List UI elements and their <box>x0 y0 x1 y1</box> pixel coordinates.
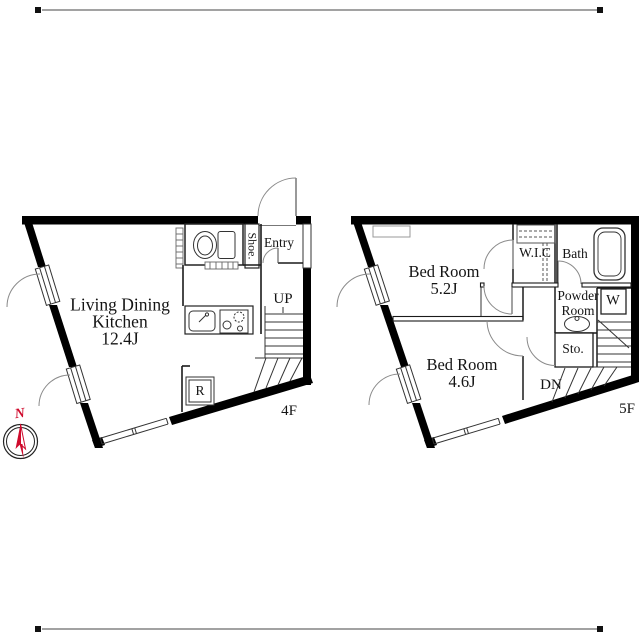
top-wall-ledge <box>373 226 410 237</box>
wic-door <box>484 240 513 269</box>
label-dn: DN <box>540 378 562 394</box>
bathtub <box>594 228 625 280</box>
label-wic: W.I.C <box>519 246 551 260</box>
window-4f-left-upper <box>7 265 60 307</box>
powder-sink <box>565 317 590 332</box>
powder-line2: Room <box>557 303 598 318</box>
label-floor-4f: 4F <box>281 404 297 420</box>
bath-door <box>558 261 581 284</box>
plan-5f <box>337 216 639 448</box>
window-4f-left-lower <box>39 365 90 406</box>
label-powder-room: Powder Room <box>557 288 598 318</box>
label-storage: Sto. <box>562 342 583 356</box>
room-label-bedroom1: Bed Room 5.2J <box>408 263 479 297</box>
bedroom-divider-wall <box>393 317 523 322</box>
entry-side-wall <box>303 224 311 268</box>
toilet-sliding-door <box>205 262 238 269</box>
powder-line1: Powder <box>557 288 598 303</box>
label-entry: Entry <box>264 236 294 250</box>
storage-door <box>527 337 555 366</box>
frame-corner-square <box>597 626 603 632</box>
room-label-ldk: Living Dining Kitchen 12.4J <box>70 297 170 348</box>
window-4f-bottom <box>100 418 168 444</box>
frame-corner-square <box>35 626 41 632</box>
room-label-bedroom2: Bed Room 4.6J <box>426 356 497 390</box>
hall-door <box>263 248 278 263</box>
entry-door <box>258 178 296 216</box>
window-5f-left-lower <box>369 365 421 405</box>
window-5f-left-upper <box>337 265 389 307</box>
hall-north-wall <box>481 283 632 287</box>
frame-corner-square <box>35 7 41 13</box>
label-north: N <box>14 407 26 423</box>
bedroom1-door <box>484 286 512 314</box>
frame-corner-square <box>597 7 603 13</box>
bedroom1-size: 5.2J <box>408 280 479 297</box>
label-shoe: Shoe. <box>246 233 259 260</box>
bedroom2-name: Bed Room <box>426 356 497 373</box>
label-bath: Bath <box>562 247 588 261</box>
bedroom2-size: 4.6J <box>426 373 497 390</box>
label-fridge: R <box>195 384 204 398</box>
bedroom1-name: Bed Room <box>408 263 479 280</box>
label-up: UP <box>273 292 292 308</box>
label-floor-5f: 5F <box>619 402 635 418</box>
label-washer: W <box>606 293 620 308</box>
bedroom2-door <box>487 320 523 356</box>
ldk-size: 12.4J <box>70 331 170 348</box>
plan-5f-outer-walls <box>351 216 639 448</box>
compass <box>4 424 38 459</box>
louver-panel <box>176 228 183 268</box>
window-5f-bottom <box>432 418 500 444</box>
floorplan-canvas: Living Dining Kitchen 12.4J Shoe. Entry … <box>0 0 640 640</box>
